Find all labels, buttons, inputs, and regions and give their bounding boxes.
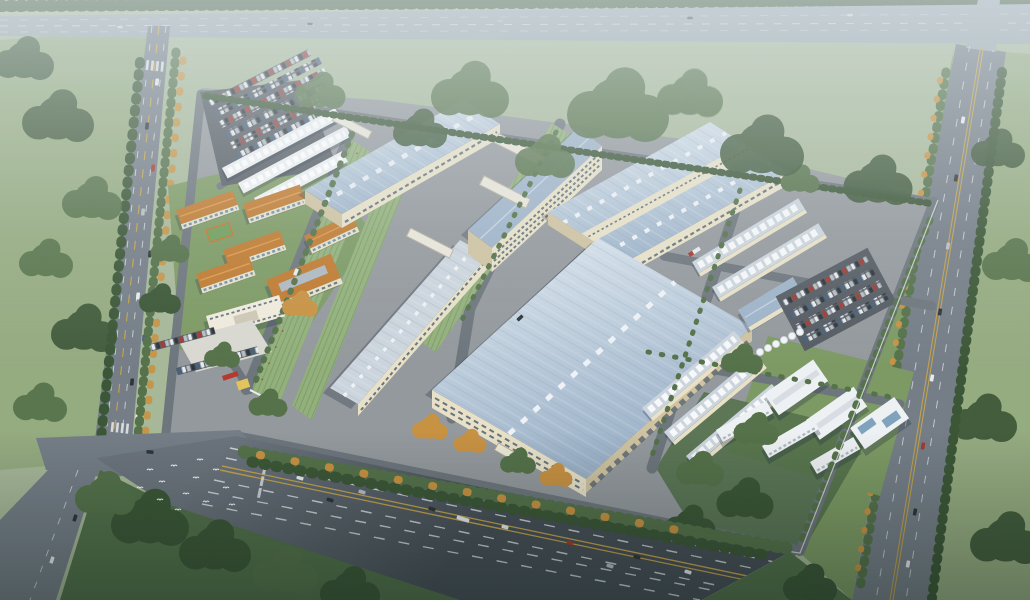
- aerial-rendering: [0, 0, 1030, 600]
- aerial-rendering-stage: [0, 0, 1030, 600]
- vignette-overlay: [0, 0, 1030, 600]
